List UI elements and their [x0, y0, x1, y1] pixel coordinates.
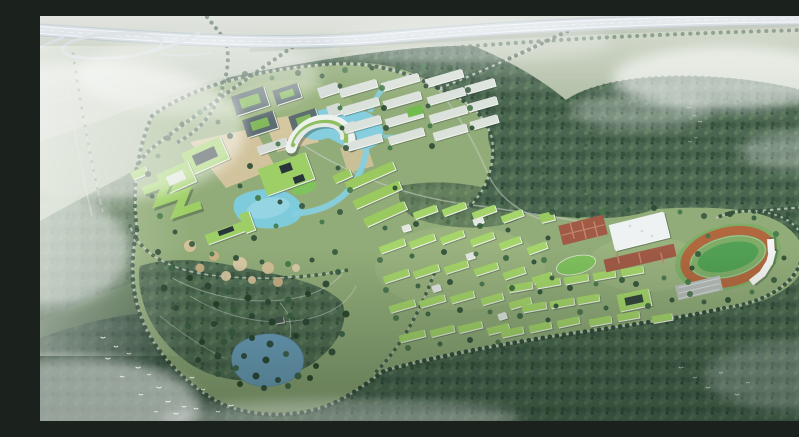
- mist-top-center: [330, 19, 610, 63]
- trees-sports-scatter: [546, 236, 551, 241]
- trees-campus-scatter: [274, 224, 279, 229]
- trees-campus-scatter: [343, 145, 349, 151]
- trees-campus-scatter: [347, 187, 353, 193]
- trees-sports-scatter: [599, 209, 605, 215]
- trees-sports-scatter: [678, 210, 683, 215]
- trees-campus-scatter: [336, 166, 341, 171]
- scene-layers: [40, 16, 799, 421]
- trees-campus-scatter: [320, 220, 325, 225]
- trees-campus-scatter: [429, 143, 435, 149]
- trees-campus-scatter: [381, 105, 387, 111]
- trees-sports-scatter: [626, 208, 631, 213]
- trees-campus-scatter: [467, 105, 473, 111]
- trees-dorm-scatter: [506, 228, 511, 233]
- trees-campus-scatter: [388, 146, 393, 151]
- trees-campus-scatter: [276, 142, 281, 147]
- trees-campus-scatter: [426, 104, 431, 109]
- trees-campus-scatter: [338, 106, 343, 111]
- trees-dorm-scatter: [413, 221, 419, 227]
- trees-sports-scatter: [701, 213, 707, 219]
- trees-sports-scatter: [706, 234, 711, 239]
- gym-roof-vents: [651, 235, 654, 238]
- gym-roof-vents: [629, 225, 632, 228]
- trees-sports-scatter: [773, 231, 779, 237]
- trees-campus-scatter: [470, 126, 475, 131]
- trees-campus-scatter: [383, 125, 389, 131]
- mist-right-wisp: [570, 93, 710, 129]
- scene-svg: [40, 16, 799, 421]
- trees-campus-scatter: [251, 235, 257, 241]
- trees-campus-scatter: [393, 186, 398, 191]
- trees-dorm-scatter: [477, 223, 483, 229]
- trees-campus-scatter: [255, 195, 261, 201]
- trees-dorm-scatter: [446, 220, 451, 225]
- campus-aerial-rendering: [40, 16, 799, 421]
- trees-campus-scatter: [247, 163, 253, 169]
- trees-campus-scatter: [428, 124, 433, 129]
- trees-campus-scatter: [278, 200, 283, 205]
- trees-sports-scatter: [576, 214, 581, 219]
- trees-sports-scatter: [549, 209, 555, 215]
- trees-sports-scatter: [651, 205, 657, 211]
- trees-dorm-scatter: [383, 226, 388, 231]
- trees-campus-scatter: [340, 126, 345, 131]
- mist-top-left-2: [80, 36, 320, 116]
- gym-roof-vents: [641, 230, 644, 233]
- trees-campus-scatter: [337, 209, 343, 215]
- trees-campus-scatter: [238, 184, 243, 189]
- trees-sports-scatter: [727, 211, 733, 217]
- trees-campus-scatter: [299, 203, 305, 209]
- trees-sports-scatter: [752, 216, 757, 221]
